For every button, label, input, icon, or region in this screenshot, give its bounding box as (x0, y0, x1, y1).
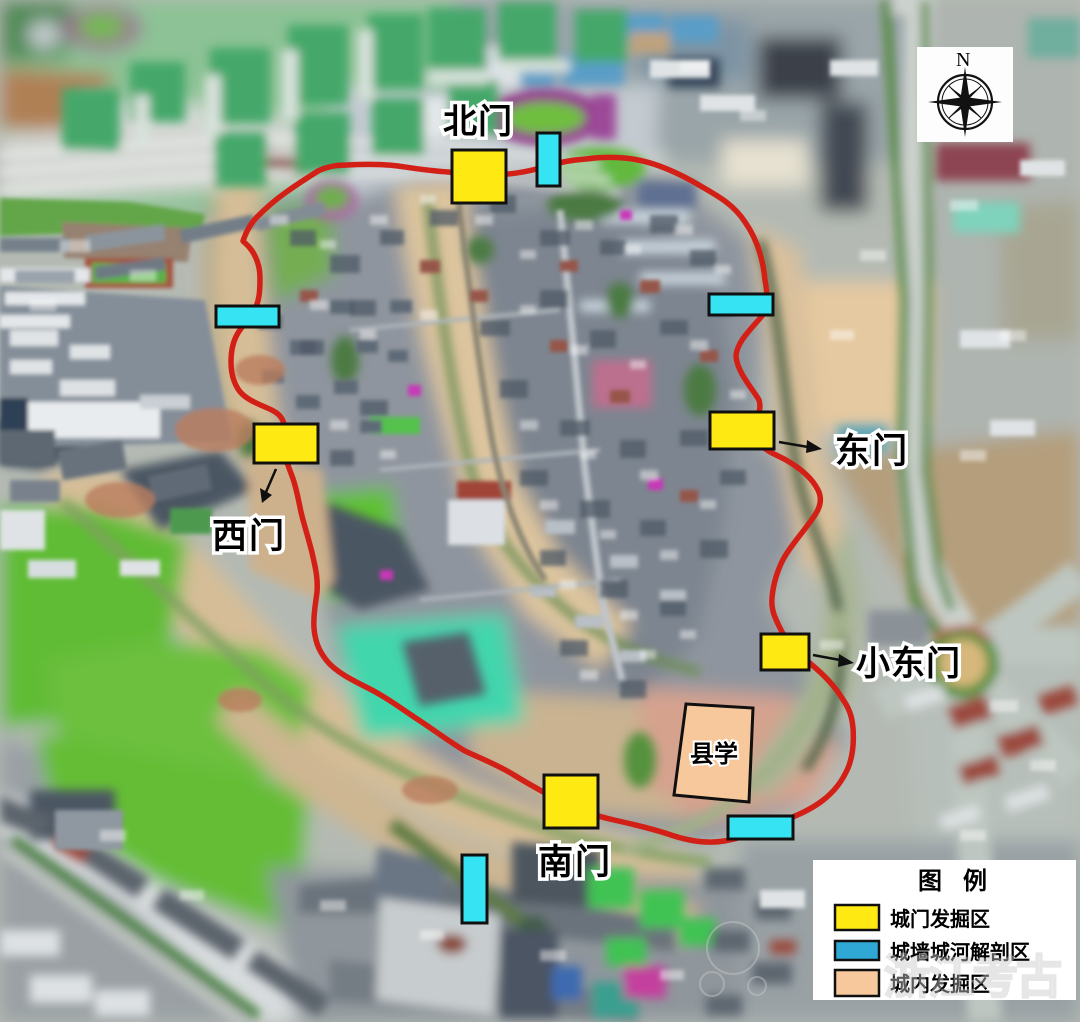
svg-text:南门: 南门 (538, 843, 612, 882)
svg-text:浙江考古: 浙江考古 (884, 951, 1061, 1003)
svg-text:城门发掘区: 城门发掘区 (890, 907, 990, 931)
svg-text:西门: 西门 (212, 517, 286, 556)
svg-text:小东门: 小东门 (856, 644, 961, 683)
svg-text:N: N (956, 49, 970, 71)
svg-text:东门: 东门 (835, 432, 909, 471)
svg-text:县学: 县学 (690, 740, 738, 768)
svg-text:北门: 北门 (443, 103, 513, 141)
